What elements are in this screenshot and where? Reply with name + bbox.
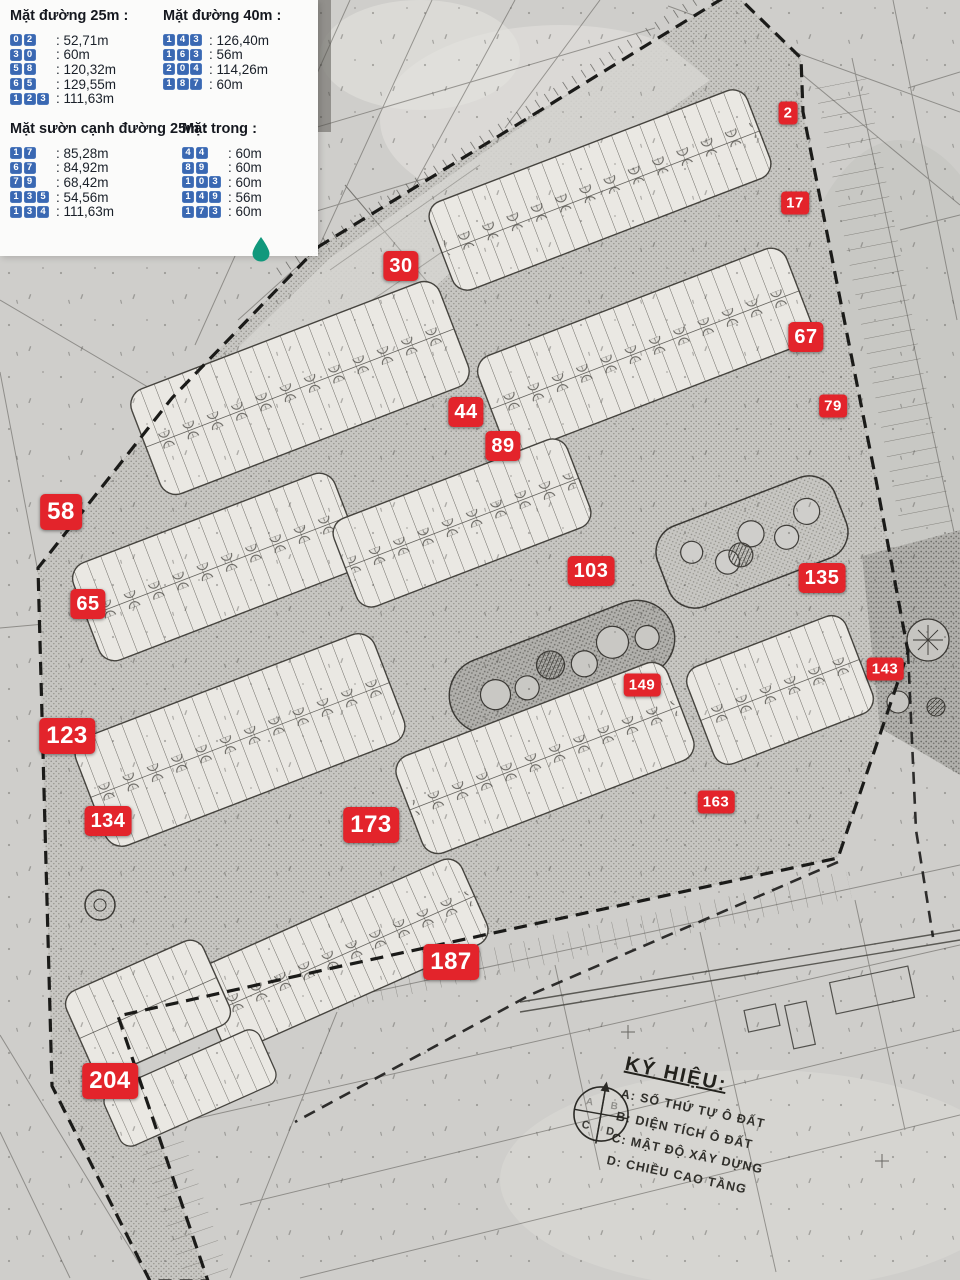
lot-code-digit: 9 bbox=[24, 176, 36, 188]
legend-entry-89: 89: 60m bbox=[182, 161, 262, 176]
lot-code-digit: 5 bbox=[37, 191, 49, 203]
lot-code-digit: 4 bbox=[37, 206, 49, 218]
lot-code-digit: 3 bbox=[10, 49, 22, 61]
legend-entry-163: 163: 56m bbox=[163, 48, 281, 63]
legend-length-value: : 60m bbox=[209, 77, 243, 92]
lot-code-digit: 1 bbox=[163, 34, 175, 46]
lot-marker-58[interactable]: 58 bbox=[40, 494, 82, 530]
lot-code-digit: 3 bbox=[190, 34, 202, 46]
legend-group-title: Mặt đường 40m : bbox=[163, 8, 281, 24]
legend-entry-17: 17: 85,28m bbox=[10, 146, 208, 161]
lot-code-digit: 0 bbox=[10, 34, 22, 46]
lot-code-digit: 1 bbox=[10, 191, 22, 203]
lot-marker-163[interactable]: 163 bbox=[698, 791, 735, 814]
legend-entry-187: 187: 60m bbox=[163, 77, 281, 92]
legend-entry-103: 103: 60m bbox=[182, 175, 262, 190]
measurements-legend-panel: Mặt đường 25m :02: 52,71m30: 60m58: 120,… bbox=[0, 0, 318, 256]
lot-code-digit: 1 bbox=[163, 49, 175, 61]
lot-code-digit: 8 bbox=[177, 78, 189, 90]
lot-marker-204[interactable]: 204 bbox=[82, 1063, 138, 1099]
lot-code-digit: 0 bbox=[196, 176, 208, 188]
lot-code-digit: 0 bbox=[24, 49, 36, 61]
lot-code-digit: 8 bbox=[24, 63, 36, 75]
legend-entry-173: 173: 60m bbox=[182, 204, 262, 219]
lot-code-digit: 2 bbox=[163, 63, 175, 75]
legend-length-value: : 85,28m bbox=[56, 146, 109, 161]
legend-group-side-25m: Mặt sườn cạnh đường 25m :17: 85,28m67: 8… bbox=[10, 121, 208, 219]
legend-entry-204: 204: 114,26m bbox=[163, 62, 281, 77]
lot-code-digit: 4 bbox=[190, 63, 202, 75]
lot-code-digit: 8 bbox=[182, 162, 194, 174]
legend-length-value: : 60m bbox=[228, 146, 262, 161]
lot-code-digit: 6 bbox=[10, 78, 22, 90]
legend-length-value: : 114,26m bbox=[209, 62, 268, 77]
lot-marker-79[interactable]: 79 bbox=[819, 395, 847, 418]
legend-entry-149: 149: 56m bbox=[182, 190, 262, 205]
legend-entry-44: 44: 60m bbox=[182, 146, 262, 161]
legend-group-inner: Mặt trong :44: 60m89: 60m103: 60m149: 56… bbox=[182, 121, 262, 219]
lot-code-digit: 1 bbox=[10, 147, 22, 159]
lot-code-digit: 3 bbox=[24, 206, 36, 218]
legend-length-value: : 56m bbox=[228, 190, 262, 205]
legend-entry-65: 65: 129,55m bbox=[10, 77, 128, 92]
site-plan-map: C D A B Mặt đường 25m :02: 52,71m30: 60m… bbox=[0, 0, 960, 1280]
lot-marker-135[interactable]: 135 bbox=[799, 563, 846, 593]
lot-code-digit: 5 bbox=[10, 63, 22, 75]
lot-code-digit: 4 bbox=[196, 147, 208, 159]
legend-entry-67: 67: 84,92m bbox=[10, 161, 208, 176]
legend-group-title: Mặt đường 25m : bbox=[10, 8, 128, 24]
legend-entry-123: 123: 111,63m bbox=[10, 91, 128, 106]
legend-entry-134: 134: 111,63m bbox=[10, 204, 208, 219]
lot-code-digit: 0 bbox=[177, 63, 189, 75]
lot-marker-2[interactable]: 2 bbox=[779, 102, 798, 125]
lot-code-digit: 3 bbox=[190, 49, 202, 61]
lot-marker-65[interactable]: 65 bbox=[70, 589, 105, 619]
lot-code-digit: 6 bbox=[10, 162, 22, 174]
legend-length-value: : 129,55m bbox=[56, 77, 116, 92]
legend-length-value: : 111,63m bbox=[56, 91, 114, 106]
legend-entry-02: 02: 52,71m bbox=[10, 33, 128, 48]
lot-code-digit: 1 bbox=[182, 206, 194, 218]
lot-code-digit: 4 bbox=[196, 191, 208, 203]
lot-marker-67[interactable]: 67 bbox=[788, 322, 823, 352]
legend-length-value: : 54,56m bbox=[56, 190, 109, 205]
lot-code-digit: 9 bbox=[196, 162, 208, 174]
legend-length-value: : 68,42m bbox=[56, 175, 109, 190]
lot-code-digit: 4 bbox=[177, 34, 189, 46]
lot-code-digit: 4 bbox=[182, 147, 194, 159]
legend-entry-30: 30: 60m bbox=[10, 48, 128, 63]
lot-marker-123[interactable]: 123 bbox=[39, 718, 95, 754]
legend-group-title: Mặt sườn cạnh đường 25m : bbox=[10, 121, 208, 137]
legend-length-value: : 60m bbox=[228, 160, 262, 175]
lot-marker-187[interactable]: 187 bbox=[423, 944, 479, 980]
lot-code-digit: 1 bbox=[10, 206, 22, 218]
lot-code-digit: 2 bbox=[24, 93, 36, 105]
lot-code-digit: 3 bbox=[209, 176, 221, 188]
lot-code-digit: 6 bbox=[177, 49, 189, 61]
legend-length-value: : 60m bbox=[228, 204, 262, 219]
lot-code-digit: 7 bbox=[24, 147, 36, 159]
lot-marker-30[interactable]: 30 bbox=[383, 251, 418, 281]
legend-entry-135: 135: 54,56m bbox=[10, 190, 208, 205]
legend-length-value: : 60m bbox=[228, 175, 262, 190]
legend-length-value: : 60m bbox=[56, 47, 90, 62]
legend-length-value: : 126,40m bbox=[209, 33, 269, 48]
lot-code-digit: 3 bbox=[24, 191, 36, 203]
lot-marker-103[interactable]: 103 bbox=[568, 556, 615, 586]
lot-code-digit: 1 bbox=[10, 93, 22, 105]
legend-entry-58: 58: 120,32m bbox=[10, 62, 128, 77]
legend-entry-143: 143: 126,40m bbox=[163, 33, 281, 48]
lot-code-digit: 3 bbox=[37, 93, 49, 105]
legend-group-road-40m: Mặt đường 40m :143: 126,40m163: 56m204: … bbox=[163, 8, 281, 91]
legend-group-road-25m: Mặt đường 25m :02: 52,71m30: 60m58: 120,… bbox=[10, 8, 128, 106]
lot-code-digit: 7 bbox=[190, 78, 202, 90]
legend-length-value: : 120,32m bbox=[56, 62, 116, 77]
lot-code-digit: 5 bbox=[24, 78, 36, 90]
lot-marker-143[interactable]: 143 bbox=[867, 658, 904, 681]
legend-entry-79: 79: 68,42m bbox=[10, 175, 208, 190]
lot-code-digit: 7 bbox=[10, 176, 22, 188]
legend-length-value: : 111,63m bbox=[56, 204, 114, 219]
lot-marker-17[interactable]: 17 bbox=[781, 192, 809, 215]
lot-code-digit: 7 bbox=[24, 162, 36, 174]
lot-marker-44[interactable]: 44 bbox=[448, 397, 483, 427]
lot-marker-149[interactable]: 149 bbox=[624, 674, 661, 697]
lot-marker-89[interactable]: 89 bbox=[485, 431, 520, 461]
legend-length-value: : 84,92m bbox=[56, 160, 109, 175]
lot-marker-134[interactable]: 134 bbox=[85, 806, 132, 836]
legend-length-value: : 56m bbox=[209, 47, 243, 62]
legend-group-title: Mặt trong : bbox=[182, 121, 262, 137]
legend-length-value: : 52,71m bbox=[56, 33, 109, 48]
lot-code-digit: 2 bbox=[24, 34, 36, 46]
lot-code-digit: 1 bbox=[182, 176, 194, 188]
lot-code-digit: 7 bbox=[196, 206, 208, 218]
lot-code-digit: 1 bbox=[163, 78, 175, 90]
lot-code-digit: 3 bbox=[209, 206, 221, 218]
lot-code-digit: 1 bbox=[182, 191, 194, 203]
lot-marker-173[interactable]: 173 bbox=[343, 807, 399, 843]
lot-code-digit: 9 bbox=[209, 191, 221, 203]
